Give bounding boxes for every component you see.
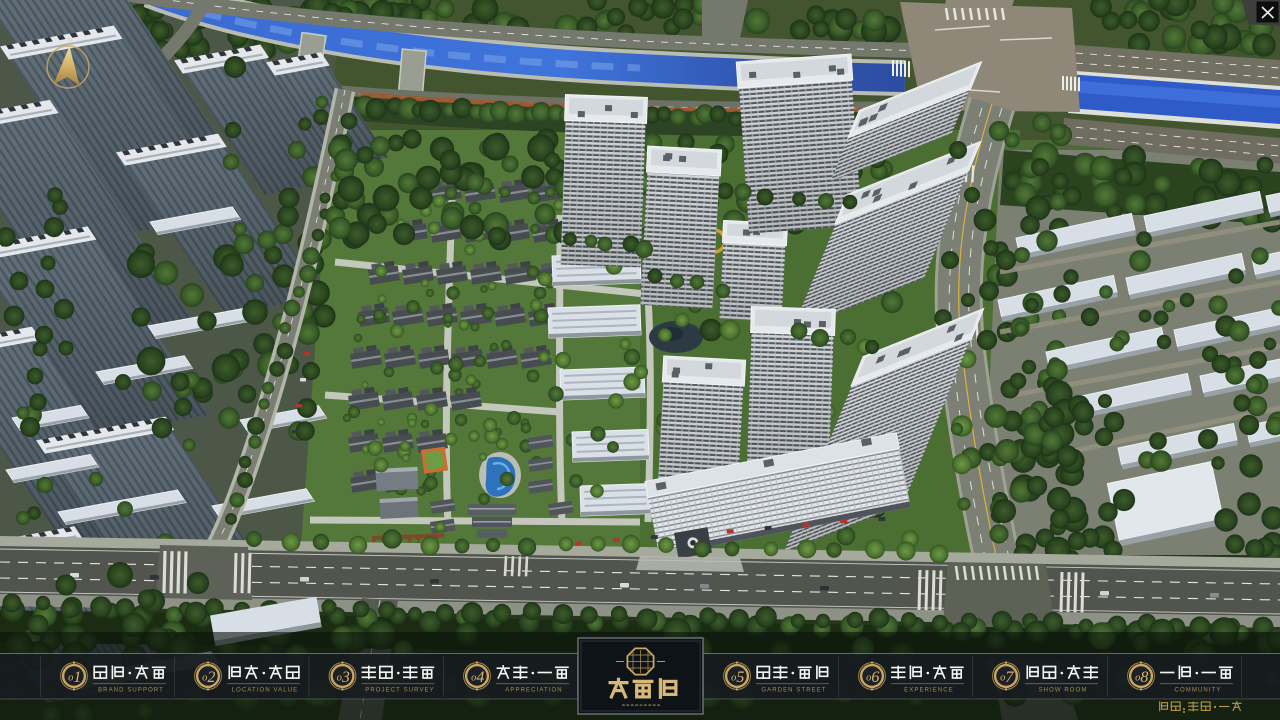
svg-text:N: N	[67, 36, 74, 45]
svg-text:4: 4	[476, 669, 484, 686]
svg-text:5: 5	[736, 669, 744, 686]
svg-text:LOCATION VALUE: LOCATION VALUE	[232, 688, 299, 694]
svg-text:EXPERIENCE: EXPERIENCE	[904, 688, 954, 694]
svg-text:BRAND SUPPORT: BRAND SUPPORT	[98, 688, 164, 694]
svg-text:APPRECIATION: APPRECIATION	[505, 688, 562, 694]
svg-text:8: 8	[1140, 669, 1148, 686]
svg-text:6: 6	[871, 669, 879, 686]
svg-text:7: 7	[1005, 669, 1014, 686]
svg-text:COMMUNITY: COMMUNITY	[1175, 688, 1222, 694]
svg-text:PROJECT SURVEY: PROJECT SURVEY	[365, 688, 435, 694]
svg-text:3: 3	[341, 669, 350, 686]
svg-text:2: 2	[207, 669, 215, 686]
svg-text:SHOW ROOM: SHOW ROOM	[1039, 688, 1088, 694]
svg-text:GARDEN STREET: GARDEN STREET	[761, 688, 826, 694]
svg-text:1: 1	[73, 669, 81, 686]
